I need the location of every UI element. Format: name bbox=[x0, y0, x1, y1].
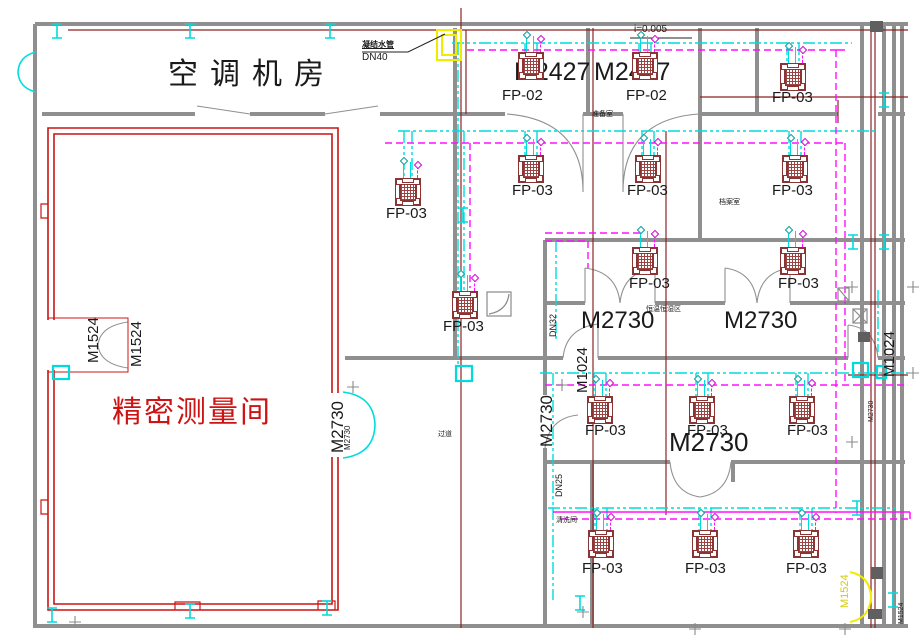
fcu-part bbox=[801, 69, 806, 84]
fan-coil-unit-fp-02 bbox=[518, 52, 544, 80]
fcu-part bbox=[595, 530, 607, 535]
label-door-m2730-h1: M2730 bbox=[581, 309, 654, 333]
fcu-part bbox=[653, 58, 658, 73]
fan-coil-unit-fp-03 bbox=[632, 247, 658, 275]
label-fcu-fp03-4: FP-03 bbox=[627, 183, 668, 198]
fcu-part bbox=[789, 402, 794, 417]
fcu-part bbox=[787, 161, 803, 178]
fcu-part bbox=[637, 253, 653, 270]
label-pipe-dn25: DN25 bbox=[555, 474, 564, 497]
fcu-part bbox=[780, 253, 785, 268]
pipe-stub bbox=[647, 231, 648, 247]
precision-room-walls bbox=[48, 128, 338, 610]
label-door-m1524-v2: M1524 bbox=[129, 321, 144, 367]
fcu-part bbox=[699, 553, 711, 558]
fcu-part bbox=[459, 291, 471, 296]
pipe-stub bbox=[467, 275, 468, 291]
fan-coil-unit-fp-03 bbox=[782, 155, 808, 183]
label-fcu-fp03-7: FP-03 bbox=[629, 276, 670, 291]
fcu-part bbox=[525, 155, 537, 160]
fcu-part bbox=[782, 161, 787, 176]
fcu-part bbox=[395, 184, 400, 199]
fcu-part bbox=[525, 52, 537, 57]
fcu-part bbox=[780, 69, 785, 84]
label-door-m1024-v2: M1024 bbox=[882, 331, 897, 377]
pipe-stub bbox=[804, 380, 805, 396]
fcu-part bbox=[587, 402, 592, 417]
fcu-part bbox=[656, 161, 661, 176]
label-room-small-5: 过道 bbox=[438, 431, 452, 438]
fan-coil-unit-fp-03 bbox=[518, 155, 544, 183]
label-door-m2730-h2: M2730 bbox=[724, 309, 797, 333]
fan-coil-unit-fp-03 bbox=[780, 247, 806, 275]
fcu-part bbox=[796, 419, 808, 424]
pipe-stub bbox=[795, 47, 796, 63]
label-fcu-fp03-3: FP-03 bbox=[512, 183, 553, 198]
fcu-part bbox=[814, 536, 819, 551]
label-door-m2730-v1b: M2730 bbox=[344, 426, 352, 450]
fcu-part bbox=[400, 184, 416, 201]
fcu-part bbox=[518, 161, 523, 176]
pipe-stub bbox=[707, 514, 708, 530]
fan-coil-unit-fp-03 bbox=[692, 530, 718, 558]
fcu-part bbox=[473, 297, 478, 312]
pipe-stub bbox=[650, 139, 651, 155]
fcu-part bbox=[593, 536, 609, 553]
fcu-part bbox=[639, 75, 651, 80]
fcu-part bbox=[609, 536, 614, 551]
survey-cross-marks bbox=[69, 281, 919, 635]
fcu-part bbox=[796, 396, 808, 401]
fcu-part bbox=[523, 58, 539, 75]
label-room-small-1: 准备室 bbox=[592, 111, 613, 118]
fcu-part bbox=[592, 402, 608, 419]
fcu-part bbox=[789, 155, 801, 160]
label-fcu-fp02-1: FP-02 bbox=[502, 88, 543, 103]
label-door-m1524-hl: M1524 bbox=[840, 574, 851, 608]
fan-coil-unit-fp-02 bbox=[632, 52, 658, 80]
fcu-part bbox=[539, 58, 544, 73]
fcu-part bbox=[789, 178, 801, 183]
label-fcu-fp02-2: FP-02 bbox=[626, 88, 667, 103]
fcu-part bbox=[588, 536, 593, 551]
fcu-part bbox=[459, 314, 471, 319]
fcu-part bbox=[798, 536, 814, 553]
fcu-part bbox=[632, 253, 637, 268]
label-pipe-dn40: DN40 bbox=[362, 53, 388, 63]
fcu-part bbox=[692, 536, 697, 551]
label-door-m1024-v1: M1024 bbox=[575, 347, 590, 393]
label-door-m1524-vt: M1524 bbox=[898, 603, 905, 624]
label-room-small-4: 清洗间 bbox=[556, 517, 577, 524]
fcu-part bbox=[689, 402, 694, 417]
fcu-part bbox=[699, 530, 711, 535]
label-fcu-fp03-6: FP-03 bbox=[443, 319, 484, 334]
fcu-part bbox=[608, 402, 613, 417]
label-fcu-fp03-8: FP-03 bbox=[778, 276, 819, 291]
fcu-part bbox=[639, 52, 651, 57]
fcu-part bbox=[523, 161, 539, 178]
fcu-part bbox=[642, 178, 654, 183]
fcu-part bbox=[539, 161, 544, 176]
pipe-stub bbox=[533, 139, 534, 155]
pipe-stub bbox=[647, 36, 648, 52]
fcu-part bbox=[594, 419, 606, 424]
fcu-part bbox=[787, 270, 799, 275]
pipe-stub bbox=[808, 514, 809, 530]
fcu-part bbox=[793, 536, 798, 551]
fcu-part bbox=[794, 402, 810, 419]
pipe-stub bbox=[533, 36, 534, 52]
label-fcu-fp03-2: FP-03 bbox=[386, 206, 427, 221]
fcu-part bbox=[595, 553, 607, 558]
label-room-small-2: 档案室 bbox=[719, 199, 740, 206]
fcu-part bbox=[642, 155, 654, 160]
fcu-part bbox=[525, 75, 537, 80]
fan-coil-unit-fp-03 bbox=[395, 178, 421, 206]
label-room-precision: 精密测量间 bbox=[112, 398, 272, 428]
fcu-part bbox=[452, 297, 457, 312]
fcu-part bbox=[713, 536, 718, 551]
fcu-part bbox=[594, 396, 606, 401]
fcu-part bbox=[800, 553, 812, 558]
fcu-part bbox=[402, 201, 414, 206]
label-room-small-3: 恒温恒湿区 bbox=[646, 306, 681, 313]
fan-coil-unit-fp-03 bbox=[588, 530, 614, 558]
label-door-m2730-h3: M2730 bbox=[669, 429, 749, 455]
fcu-part bbox=[416, 184, 421, 199]
fcu-part bbox=[637, 58, 653, 75]
fan-coil-unit-fp-03 bbox=[635, 155, 661, 183]
pipe-stub bbox=[797, 139, 798, 155]
fcu-part bbox=[697, 536, 713, 553]
fcu-part bbox=[635, 161, 640, 176]
label-fcu-fp03-14: FP-03 bbox=[786, 561, 827, 576]
fcu-part bbox=[525, 178, 537, 183]
fcu-part bbox=[710, 402, 715, 417]
fcu-part bbox=[457, 297, 473, 314]
fcu-part bbox=[810, 402, 815, 417]
pipe-stub bbox=[603, 514, 604, 530]
fan-coil-unit-fp-03 bbox=[780, 63, 806, 91]
label-fcu-fp03-13: FP-03 bbox=[685, 561, 726, 576]
label-fcu-fp03-9: FP-03 bbox=[585, 423, 626, 438]
fcu-part bbox=[696, 396, 708, 401]
pipe-stub bbox=[410, 162, 411, 178]
fcu-part bbox=[632, 58, 637, 73]
fcu-part bbox=[787, 63, 799, 68]
label-room-machine: 空调机房 bbox=[168, 60, 336, 90]
pipe-risers bbox=[53, 363, 886, 381]
door-gap-left bbox=[45, 320, 56, 370]
label-pipe-dn32: DN32 bbox=[549, 314, 558, 337]
fcu-part bbox=[787, 86, 799, 91]
fcu-part bbox=[801, 253, 806, 268]
door-arcs bbox=[98, 106, 878, 497]
fcu-part bbox=[696, 419, 708, 424]
floor-plan-canvas[interactable]: 空调机房精密测量间M2427M2427FP-02FP-02FP-03FP-03F… bbox=[0, 0, 919, 643]
fcu-part bbox=[653, 253, 658, 268]
fcu-part bbox=[785, 69, 801, 86]
fcu-part bbox=[639, 247, 651, 252]
fan-coil-unit-fp-03 bbox=[452, 291, 478, 319]
label-door-m1524-v1: M1524 bbox=[86, 317, 101, 363]
fcu-part bbox=[640, 161, 656, 178]
fcu-part bbox=[803, 161, 808, 176]
fcu-part bbox=[800, 530, 812, 535]
fcu-part bbox=[639, 270, 651, 275]
fan-coil-unit-fp-03 bbox=[689, 396, 715, 424]
label-fcu-fp03-5: FP-03 bbox=[772, 183, 813, 198]
fan-coil-unit-fp-03 bbox=[789, 396, 815, 424]
fcu-part bbox=[518, 58, 523, 73]
pipe-stub bbox=[602, 380, 603, 396]
fcu-part bbox=[785, 253, 801, 270]
fcu-part bbox=[787, 247, 799, 252]
label-door-m2730-v2: M2730 bbox=[538, 395, 555, 447]
pipe-stub bbox=[704, 380, 705, 396]
fcu-part bbox=[402, 178, 414, 183]
pipe-stub bbox=[795, 231, 796, 247]
label-door-m2730-vt: M2730 bbox=[868, 401, 875, 422]
label-fcu-fp03-11: FP-03 bbox=[787, 423, 828, 438]
fan-coil-unit-fp-03 bbox=[793, 530, 819, 558]
label-pipe-note: 凝结水管 bbox=[362, 41, 394, 49]
label-fcu-fp03-12: FP-03 bbox=[582, 561, 623, 576]
label-fcu-fp03-1: FP-03 bbox=[772, 90, 813, 105]
fcu-part bbox=[694, 402, 710, 419]
fan-coil-unit-fp-03 bbox=[587, 396, 613, 424]
